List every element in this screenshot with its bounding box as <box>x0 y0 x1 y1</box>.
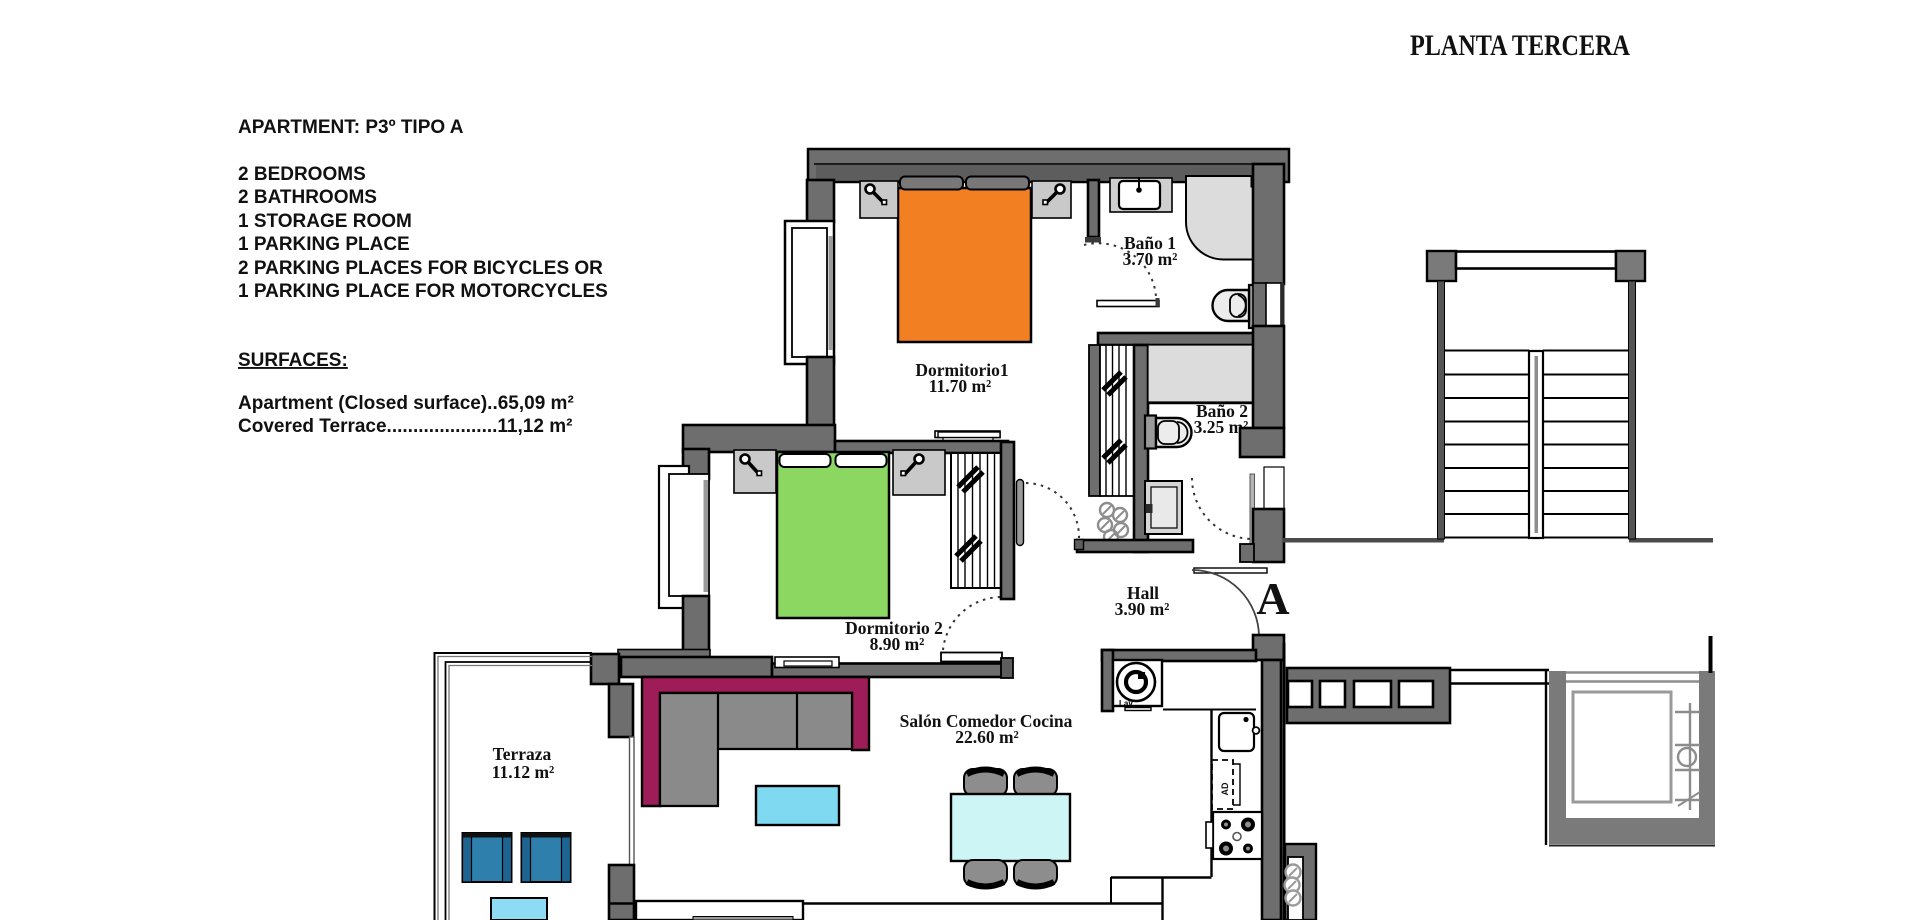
svg-text:3.70 m²: 3.70 m² <box>1123 249 1178 269</box>
svg-text:1 PARKING PLACE: 1 PARKING PLACE <box>238 234 410 255</box>
svg-text:11.12 m²: 11.12 m² <box>492 762 555 782</box>
svg-text:2 BATHROOMS: 2 BATHROOMS <box>238 187 377 208</box>
svg-text:1 PARKING PLACE FOR MOTORCYCLE: 1 PARKING PLACE FOR MOTORCYCLES <box>238 281 608 302</box>
svg-text:8.90 m²: 8.90 m² <box>870 634 925 654</box>
svg-text:2 PARKING PLACES FOR BICYCLES: 2 PARKING PLACES FOR BICYCLES OR <box>238 258 603 279</box>
svg-text:Apartment (Closed surface)..65: Apartment (Closed surface)..65,09 m² <box>238 393 574 414</box>
svg-text:A: A <box>1256 573 1289 624</box>
svg-text:1 STORAGE ROOM: 1 STORAGE ROOM <box>238 211 412 232</box>
svg-text:11.70 m²: 11.70 m² <box>929 376 992 396</box>
svg-text:22.60 m²: 22.60 m² <box>955 727 1019 747</box>
svg-text:APARTMENT: P3º TIPO A: APARTMENT: P3º TIPO A <box>238 117 464 138</box>
svg-text:3.90 m²: 3.90 m² <box>1115 599 1170 619</box>
svg-text:Lav: Lav <box>1119 699 1133 708</box>
svg-text:PLANTA TERCERA: PLANTA TERCERA <box>1410 29 1630 62</box>
svg-text:SURFACES:: SURFACES: <box>238 350 348 371</box>
svg-text:AD: AD <box>1220 782 1230 795</box>
svg-text:2 BEDROOMS: 2 BEDROOMS <box>238 164 366 185</box>
svg-text:Terraza: Terraza <box>493 744 552 764</box>
svg-text:Covered Terrace...............: Covered Terrace.....................11,1… <box>238 416 572 437</box>
